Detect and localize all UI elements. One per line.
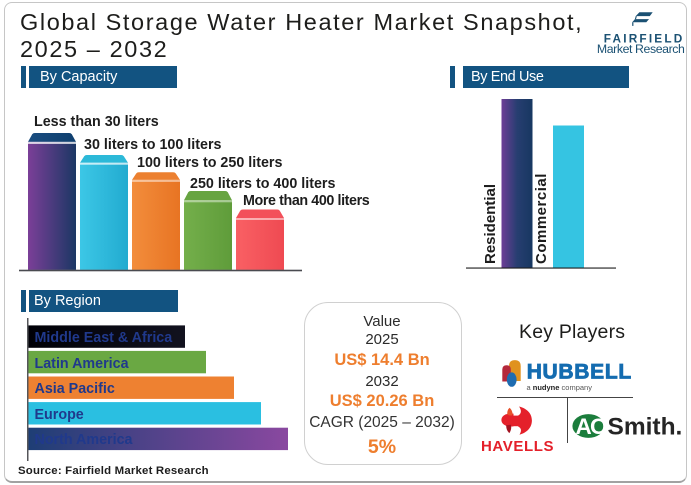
svg-text:HUBBELL: HUBBELL [527,361,632,384]
svg-text:AO: AO [576,414,607,439]
svg-text:a nudyne company: a nudyne company [527,383,593,392]
svg-text:Smith.: Smith. [608,414,683,441]
